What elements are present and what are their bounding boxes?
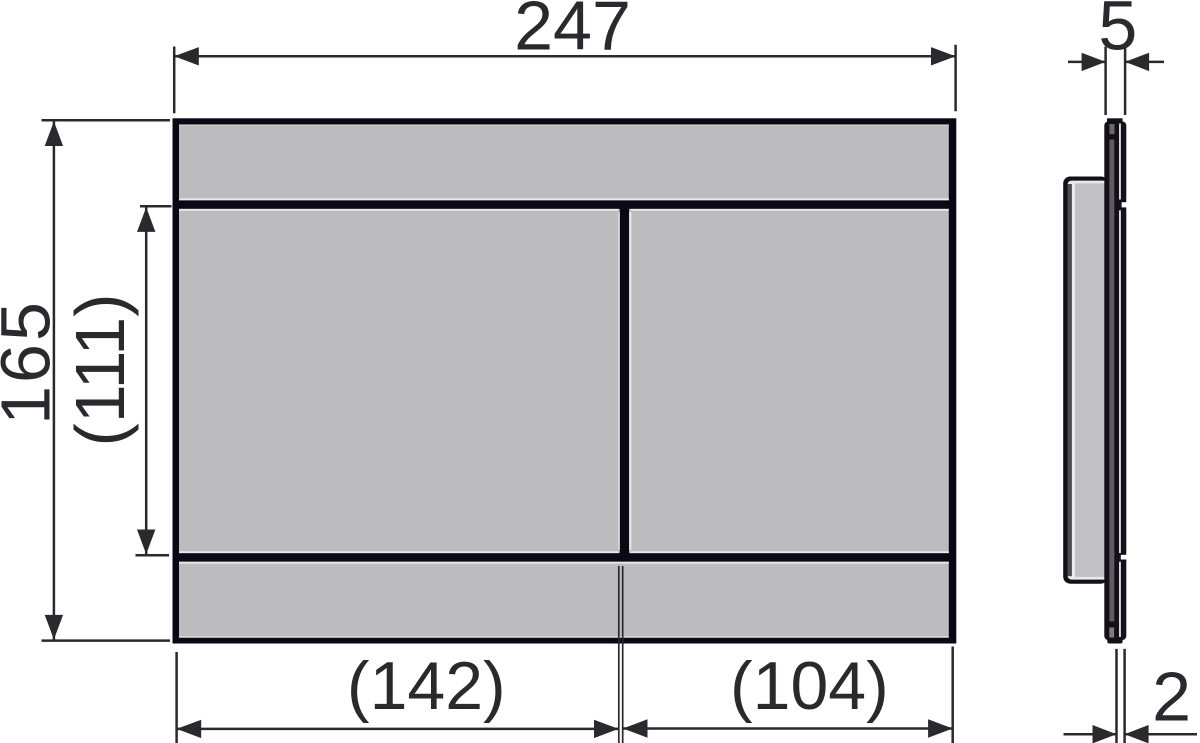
svg-text:(111): (111) [61, 293, 139, 446]
svg-text:165: 165 [0, 299, 64, 425]
svg-text:(104): (104) [730, 648, 889, 724]
svg-text:5: 5 [1098, 0, 1137, 65]
svg-text:(142): (142) [347, 648, 506, 724]
svg-text:247: 247 [514, 0, 631, 64]
svg-text:2: 2 [1152, 657, 1191, 735]
